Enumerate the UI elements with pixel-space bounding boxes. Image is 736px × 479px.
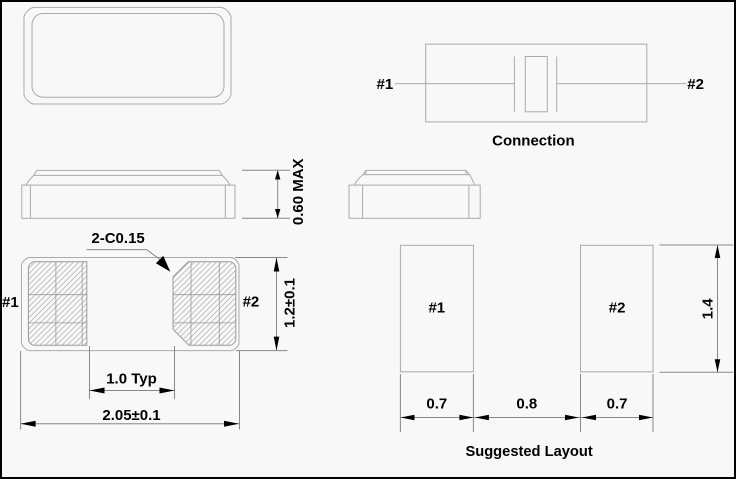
svg-text:#2: #2 <box>243 294 260 311</box>
svg-text:2.05±0.1: 2.05±0.1 <box>102 407 160 424</box>
svg-text:#1: #1 <box>377 76 394 93</box>
svg-text:#2: #2 <box>609 299 626 316</box>
svg-text:#1: #1 <box>2 294 19 311</box>
svg-text:#1: #1 <box>428 299 445 316</box>
svg-text:0.7: 0.7 <box>426 396 447 413</box>
svg-text:Suggested Layout: Suggested Layout <box>465 444 592 460</box>
svg-text:1.2±0.1: 1.2±0.1 <box>282 278 299 328</box>
svg-text:0.8: 0.8 <box>516 396 537 413</box>
svg-text:1.0 Typ: 1.0 Typ <box>106 371 157 388</box>
svg-text:Connection: Connection <box>492 133 575 150</box>
svg-text:2-C0.15: 2-C0.15 <box>91 230 144 247</box>
svg-text:0.60 MAX: 0.60 MAX <box>290 158 307 225</box>
svg-text:0.7: 0.7 <box>607 396 628 413</box>
svg-text:#2: #2 <box>687 76 704 93</box>
svg-text:1.4: 1.4 <box>700 298 717 320</box>
